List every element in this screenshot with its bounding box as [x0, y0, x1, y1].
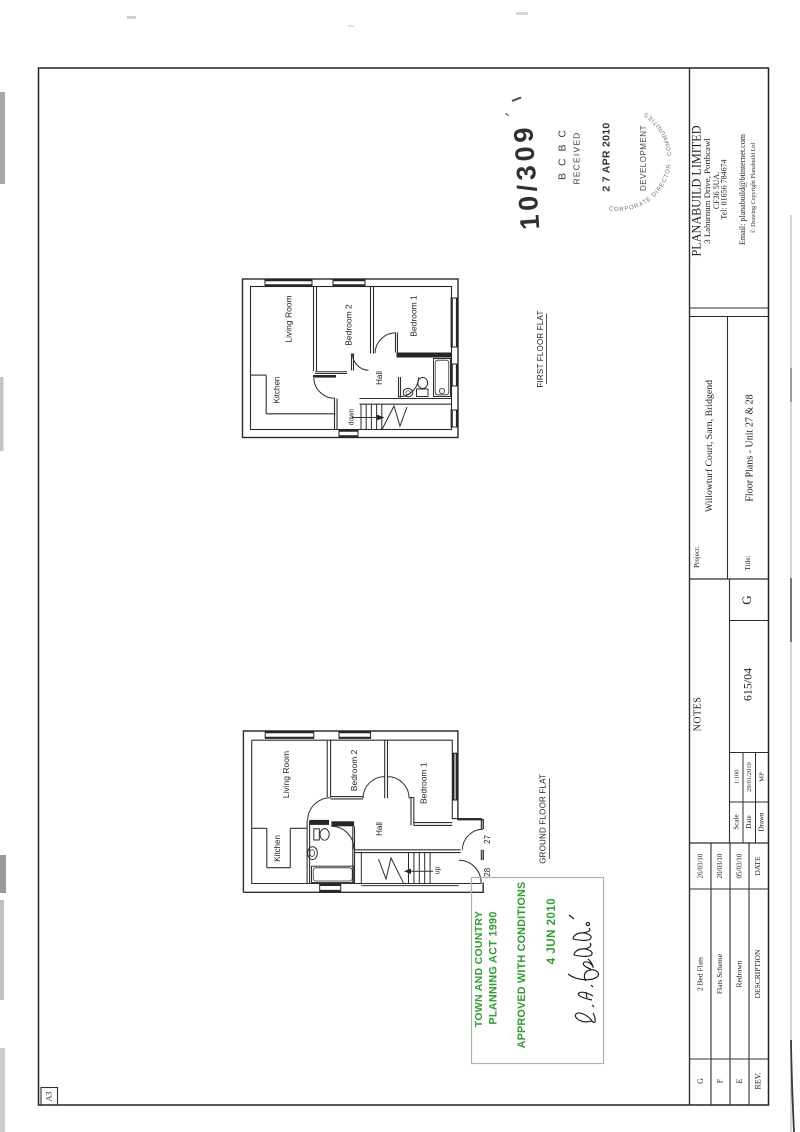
svg-text:Hall: Hall: [375, 371, 384, 385]
svg-text:down: down: [348, 409, 355, 426]
svg-text:1:100: 1:100: [733, 770, 740, 785]
svg-text:Scale: Scale: [733, 814, 741, 829]
svg-text:28: 28: [483, 867, 492, 876]
svg-text:up: up: [435, 866, 442, 874]
svg-text:MP: MP: [758, 772, 765, 782]
svg-text:Floor Plans - Unit 27 & 28: Floor Plans - Unit 27 & 28: [744, 394, 755, 501]
svg-text:Kitchen: Kitchen: [273, 835, 282, 862]
svg-text:615/04: 615/04: [740, 668, 754, 701]
svg-text:Email: planabuild@btinternet.c: Email: planabuild@btinternet.com: [738, 133, 747, 245]
svg-text:Bedroom 1: Bedroom 1: [418, 762, 428, 804]
svg-text:DEVELOPMENT: DEVELOPMENT: [639, 125, 648, 191]
svg-text:RECEIVED: RECEIVED: [571, 131, 581, 184]
svg-text:27: 27: [483, 834, 492, 843]
svg-text:26/03/10: 26/03/10: [697, 853, 705, 878]
svg-text:PLANNING ACT 1990: PLANNING ACT 1990: [488, 911, 500, 1024]
svg-text:Flats Scheme: Flats Scheme: [715, 953, 724, 994]
svg-text:Living Room: Living Room: [281, 751, 291, 798]
svg-text:E: E: [735, 1078, 744, 1083]
svg-text:2 7 APR 2010: 2 7 APR 2010: [600, 122, 612, 191]
svg-text:Kitchen: Kitchen: [273, 377, 282, 404]
svg-text:Tel: 01656 784674: Tel: 01656 784674: [720, 159, 729, 219]
svg-text:F: F: [715, 1078, 724, 1083]
svg-text:3 Laburnum Drive, Porthcawl: 3 Laburnum Drive, Porthcawl: [702, 138, 712, 244]
svg-text:© Drawing Copyright Planabuild: © Drawing Copyright Planabuild Ltd: [750, 143, 757, 233]
svg-text:Hall: Hall: [375, 822, 384, 836]
svg-text:Willowturf Court, Sarn, Bridge: Willowturf Court, Sarn, Bridgend: [704, 380, 715, 512]
svg-text:Date: Date: [745, 815, 753, 828]
svg-text:B C B C: B C B C: [556, 128, 568, 180]
svg-text:4 JUN 2010: 4 JUN 2010: [546, 898, 558, 964]
svg-text:A3: A3: [44, 1092, 53, 1102]
svg-text:Project:: Project:: [693, 546, 701, 568]
svg-text:Bedroom 1: Bedroom 1: [408, 295, 418, 337]
svg-text:GROUND FLOOR FLAT: GROUND FLOOR FLAT: [539, 774, 548, 864]
svg-text:10/309: 10/309: [508, 122, 545, 230]
svg-text:05/03/10: 05/03/10: [736, 853, 744, 878]
svg-text:G: G: [696, 1078, 705, 1084]
svg-text:DESCRIPTION: DESCRIPTION: [753, 949, 762, 998]
svg-text:TOWN AND COUNTRY: TOWN AND COUNTRY: [473, 911, 485, 1027]
svg-text:20/03/10: 20/03/10: [716, 853, 724, 878]
svg-text:FIRST FLOOR FLAT: FIRST FLOOR FLAT: [536, 310, 545, 387]
svg-text:Redrawn: Redrawn: [735, 960, 744, 987]
svg-text:29/01/2010: 29/01/2010: [746, 762, 753, 792]
svg-text:NOTES: NOTES: [693, 697, 704, 732]
svg-text:REV.: REV.: [753, 1073, 762, 1090]
svg-text:Bedroom 2: Bedroom 2: [349, 749, 359, 791]
svg-text:Living Room: Living Room: [283, 295, 293, 342]
svg-text:Drawn: Drawn: [758, 812, 766, 832]
svg-text:Bedroom 2: Bedroom 2: [343, 304, 353, 346]
svg-text:G: G: [739, 595, 754, 604]
svg-text:Title:: Title:: [744, 555, 752, 570]
svg-text:DATE: DATE: [753, 856, 762, 876]
svg-text:APPROVED WITH CONDITIONS: APPROVED WITH CONDITIONS: [516, 882, 528, 1049]
svg-text:2 Bed Flats: 2 Bed Flats: [696, 957, 705, 991]
